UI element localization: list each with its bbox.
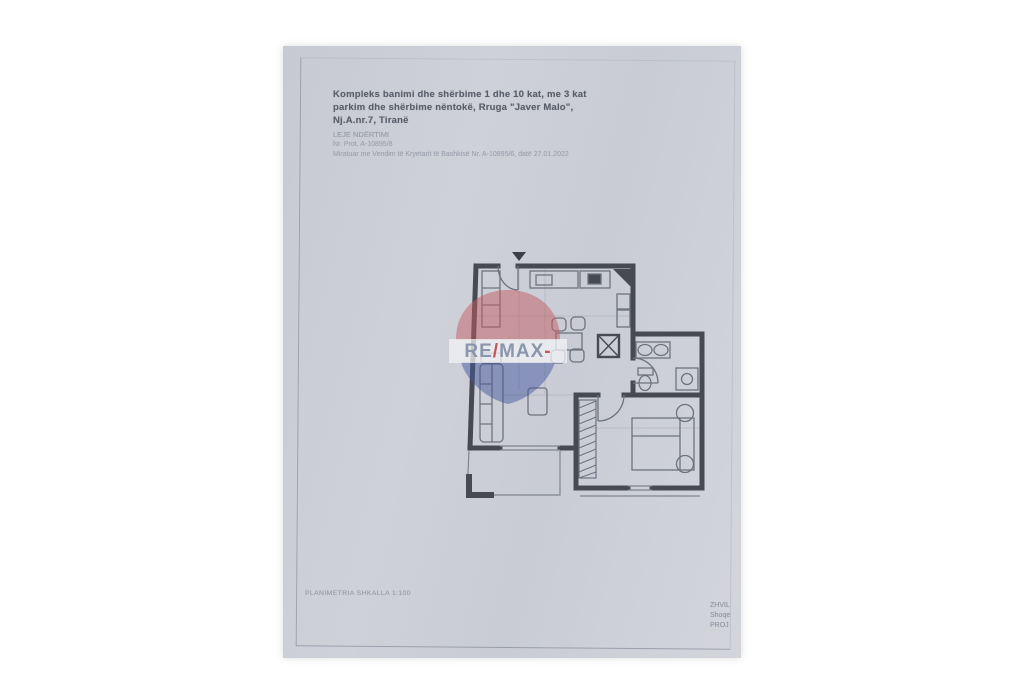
balcony-wall-stubs — [466, 474, 494, 498]
title-block: Kompleks banimi dhe shërbime 1 dhe 10 ka… — [333, 88, 673, 159]
entrance-marker-icon — [512, 252, 526, 261]
wardrobe-hatched — [579, 400, 596, 478]
corner-shaft — [613, 269, 631, 287]
scanned-page: Kompleks banimi dhe shërbime 1 dhe 10 ka… — [0, 0, 1024, 683]
scale-note: PLANIMETRIA SHKALLA 1:100 — [305, 590, 411, 597]
project-title-line2: parkim dhe shërbime nëntokë, Rruga "Jave… — [333, 101, 673, 114]
protocol-number: Nr. Prot. A-10895/8 — [333, 140, 673, 150]
balloon-bottom-blue — [461, 362, 555, 404]
stamp-block: ZHVIL Shoqe PROJ — [710, 601, 730, 631]
stamp-line-company: Shoqe — [710, 611, 730, 621]
shaft-box — [598, 335, 619, 357]
project-title-line1: Kompleks banimi dhe shërbime 1 dhe 10 ka… — [333, 88, 673, 101]
project-title-line3: Nj.A.nr.7, Tiranë — [333, 114, 673, 127]
approval-note: Miratuar me Vendim të Kryetarit të Bashk… — [333, 150, 673, 160]
stamp-line-developer: ZHVIL — [710, 601, 730, 611]
balloon-top-red — [456, 290, 560, 340]
stamp-line-designer: PROJ — [710, 621, 730, 631]
permit-type: LEJE NDËRTIMI — [333, 130, 673, 140]
remax-balloon-icon: RE/MAX- — [449, 282, 567, 408]
paper-sheet: Kompleks banimi dhe shërbime 1 dhe 10 ka… — [283, 46, 741, 658]
remax-wordmark: RE/MAX- — [464, 341, 551, 362]
bed — [632, 405, 694, 473]
